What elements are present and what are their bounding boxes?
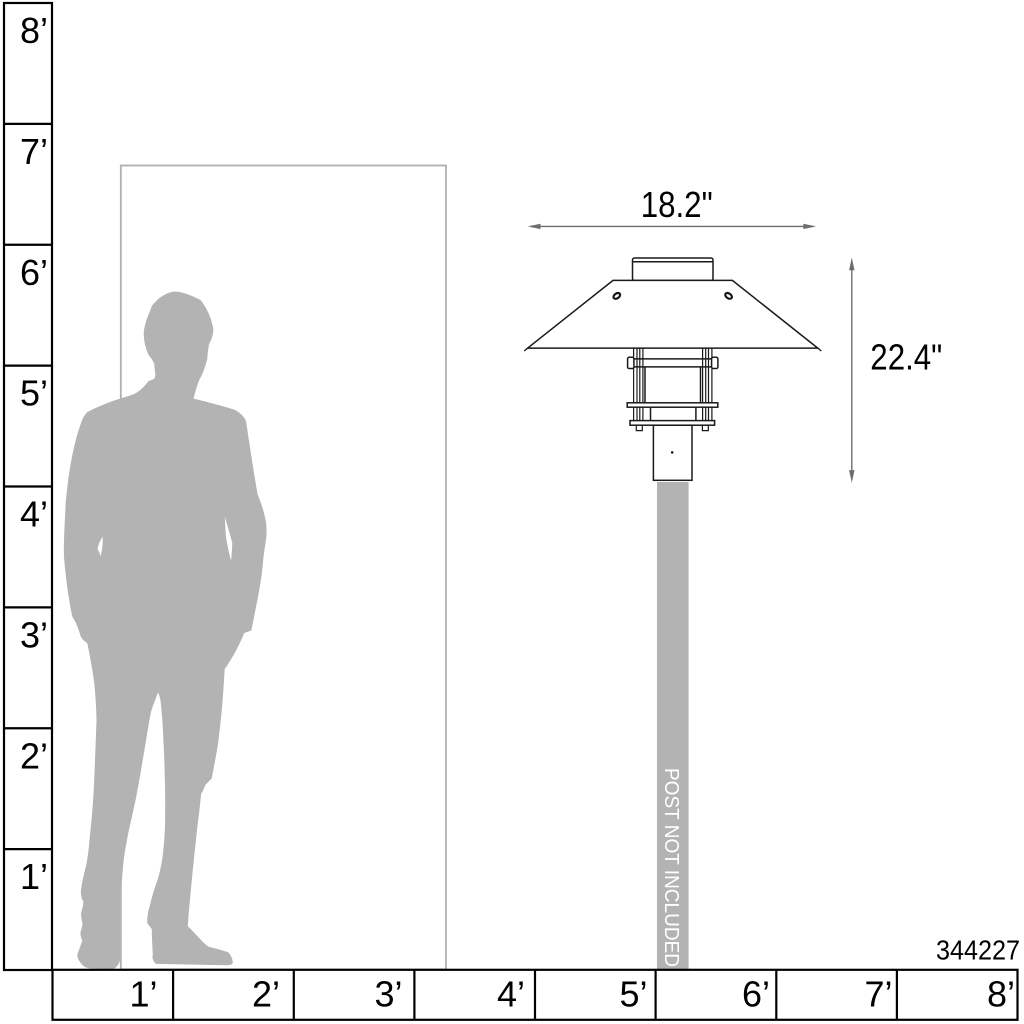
svg-text:5’: 5’ bbox=[20, 373, 48, 414]
svg-text:2’: 2’ bbox=[20, 735, 48, 776]
svg-text:7’: 7’ bbox=[20, 131, 48, 172]
svg-text:4’: 4’ bbox=[497, 974, 525, 1015]
svg-text:18.2": 18.2" bbox=[641, 184, 713, 225]
svg-text:22.4": 22.4" bbox=[870, 337, 942, 378]
svg-text:3’: 3’ bbox=[20, 614, 48, 655]
svg-text:6’: 6’ bbox=[20, 252, 48, 293]
svg-text:6’: 6’ bbox=[742, 974, 770, 1015]
svg-text:POST NOT INCLUDED: POST NOT INCLUDED bbox=[660, 768, 682, 967]
svg-text:8’: 8’ bbox=[987, 974, 1015, 1015]
svg-text:4’: 4’ bbox=[20, 494, 48, 535]
svg-text:1’: 1’ bbox=[129, 974, 157, 1015]
svg-text:7’: 7’ bbox=[864, 974, 892, 1015]
svg-text:344227: 344227 bbox=[936, 934, 1020, 965]
svg-text:8’: 8’ bbox=[20, 10, 48, 51]
svg-text:3’: 3’ bbox=[374, 974, 402, 1015]
svg-text:5’: 5’ bbox=[619, 974, 647, 1015]
svg-text:1’: 1’ bbox=[20, 856, 48, 897]
svg-text:2’: 2’ bbox=[252, 974, 280, 1015]
